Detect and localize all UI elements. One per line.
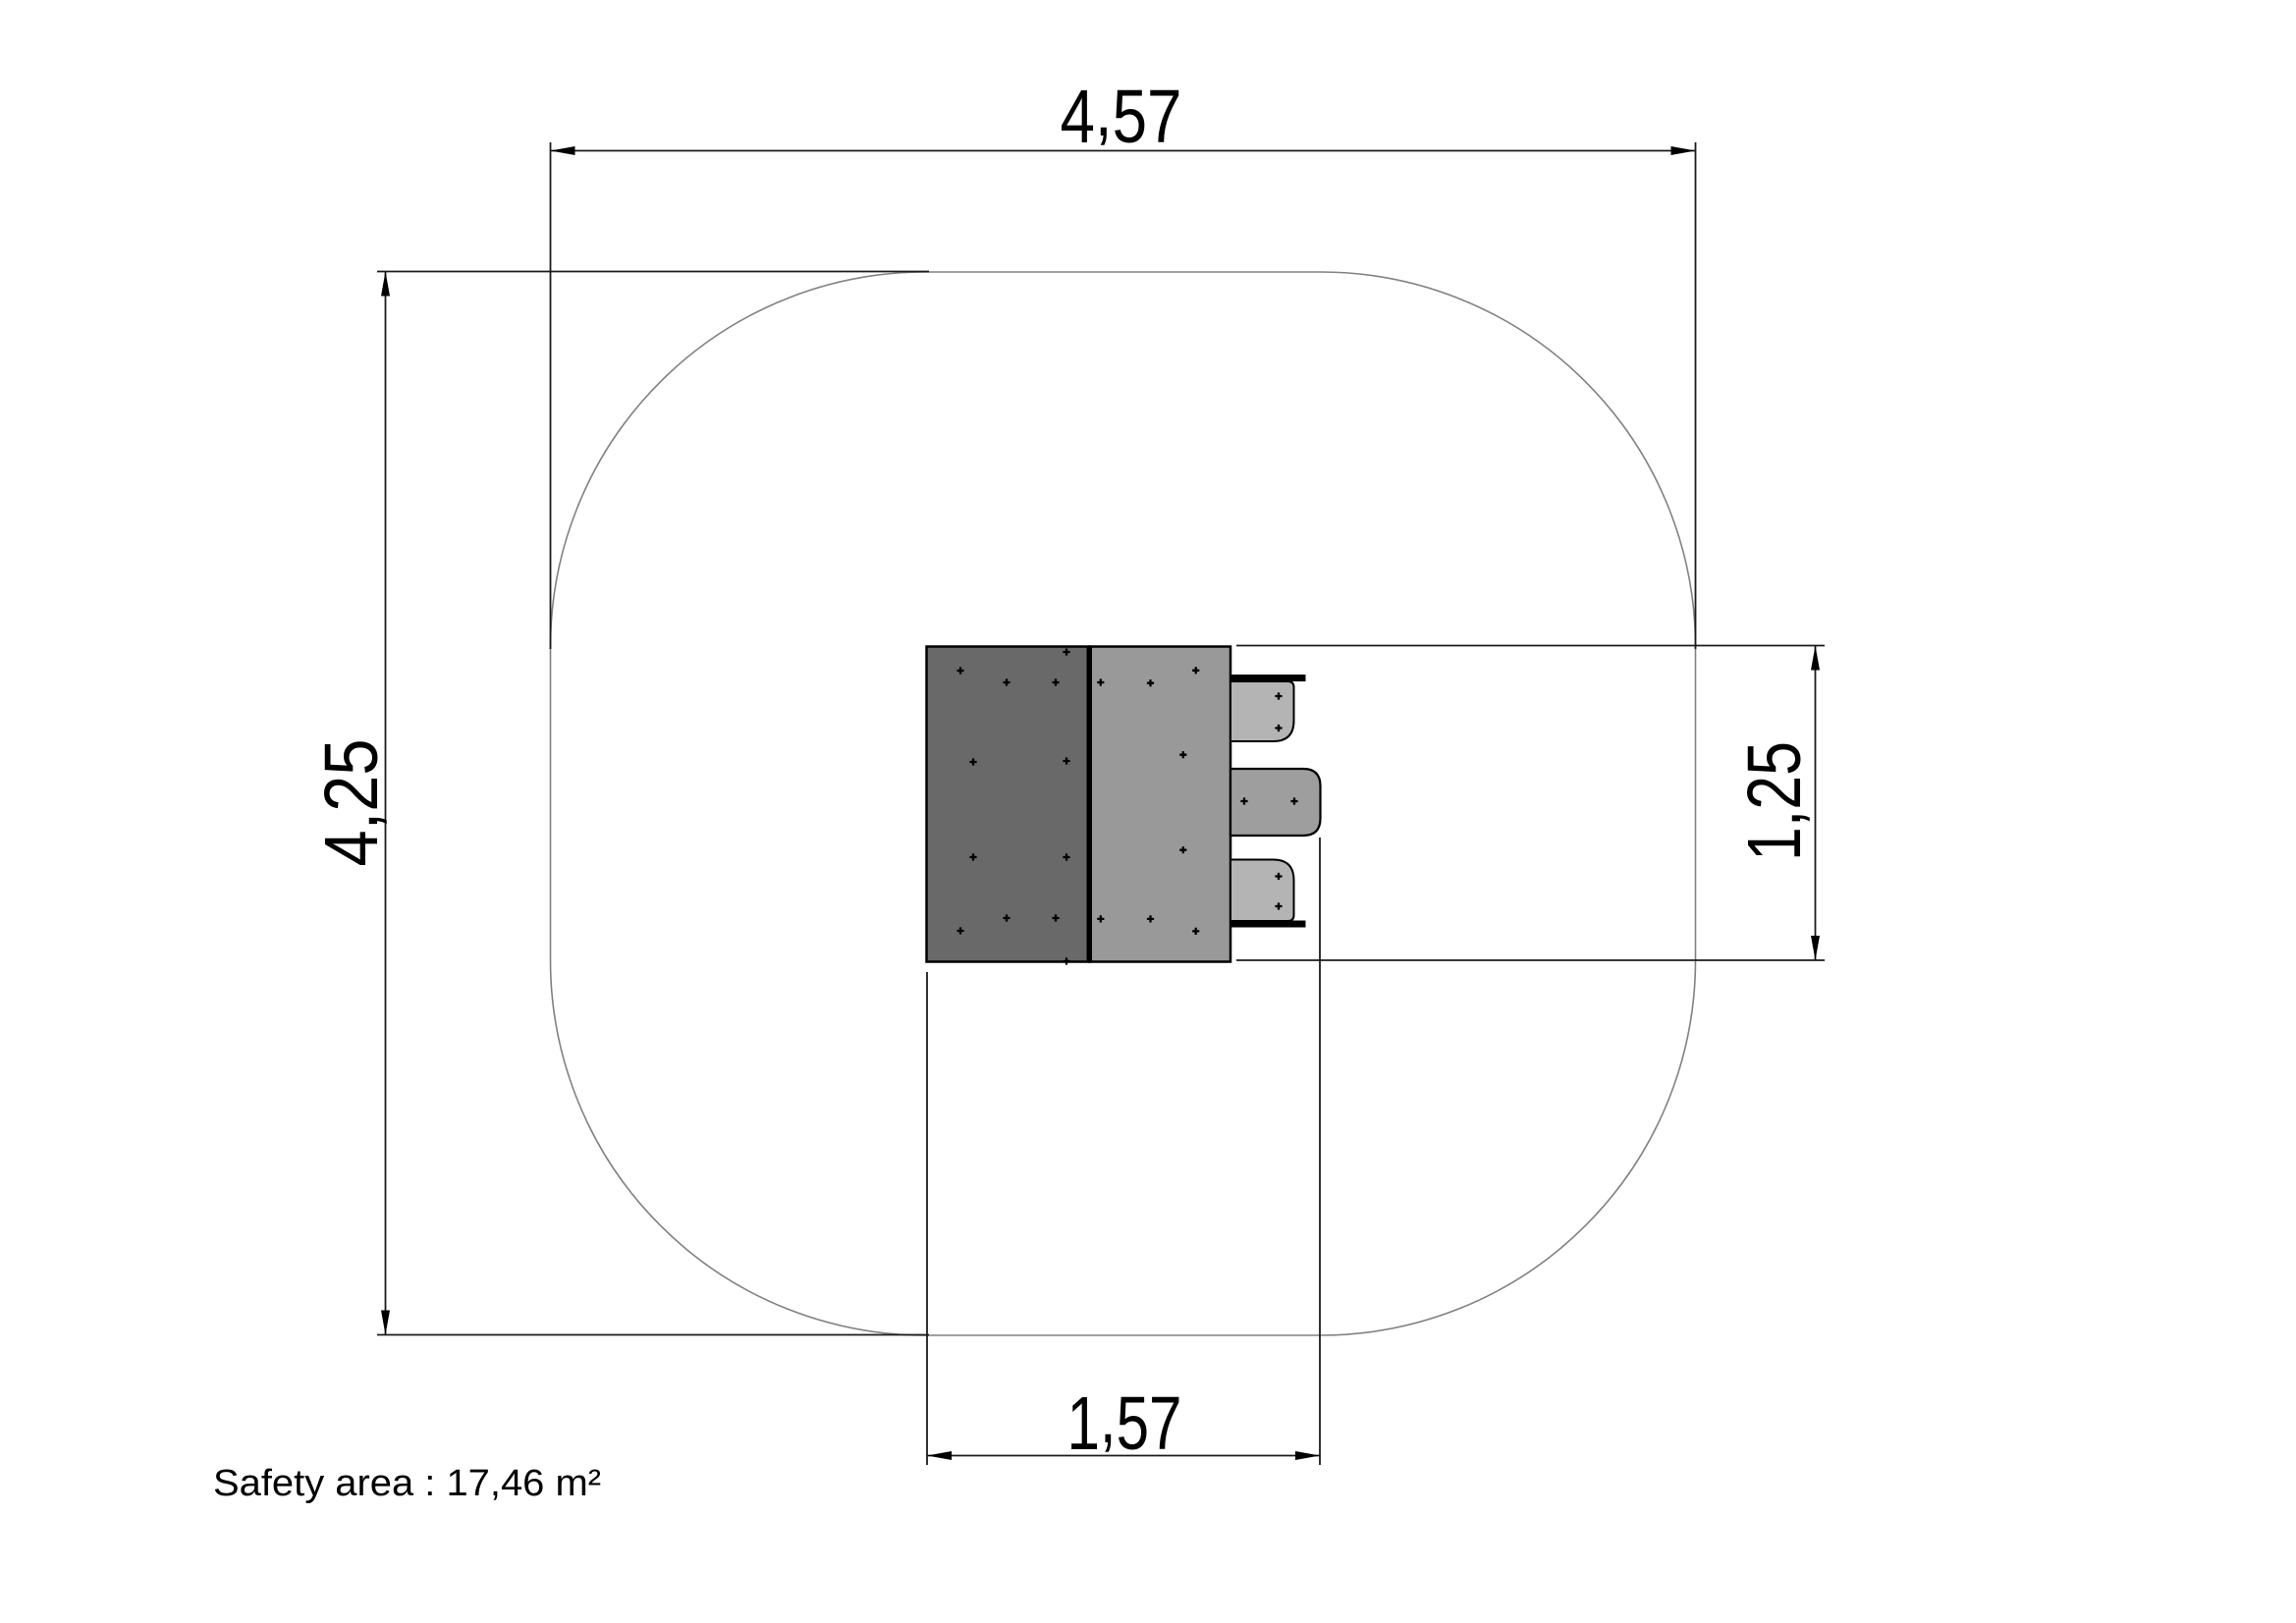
svg-text:4,25: 4,25: [309, 739, 394, 867]
svg-text:1,25: 1,25: [1732, 741, 1817, 861]
svg-text:4,57: 4,57: [1061, 68, 1182, 159]
svg-text:1,57: 1,57: [1067, 1375, 1182, 1466]
svg-text:Safety area : 17,46 m²: Safety area : 17,46 m²: [213, 1463, 601, 1504]
